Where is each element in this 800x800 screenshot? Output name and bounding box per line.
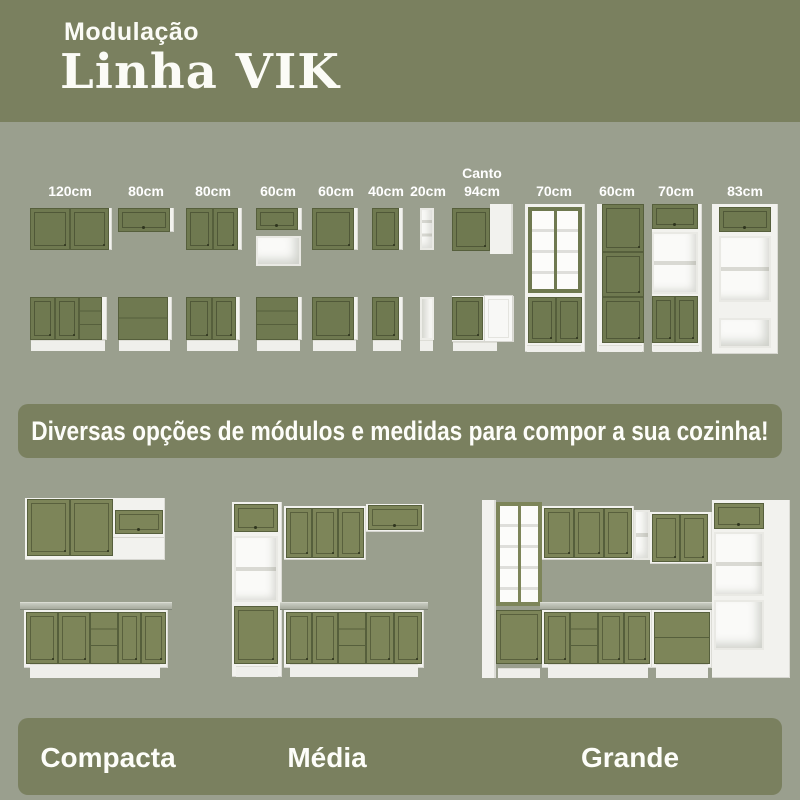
plinth — [290, 664, 418, 677]
countertop — [280, 602, 428, 610]
side-panel — [482, 500, 496, 678]
open-niche — [714, 600, 764, 650]
promo-banner: Diversas opções de módulos e medidas par… — [18, 404, 782, 458]
module-size-label: 70cm — [522, 158, 586, 200]
module-size-label: 60cm — [585, 158, 649, 200]
module-size-label: 83cm — [713, 158, 777, 200]
plinth — [420, 340, 433, 351]
cabinet-door — [312, 612, 338, 664]
cabinet-door — [234, 606, 278, 664]
cabinet-door — [55, 297, 79, 340]
drawer-stack — [118, 297, 168, 340]
plinth — [599, 345, 642, 352]
cabinet-carcass — [113, 534, 165, 538]
cabinet-door — [604, 508, 632, 558]
promo-banner-text: Diversas opções de módulos e medidas par… — [31, 416, 768, 447]
cabinet-door — [496, 610, 542, 664]
cabinet-door — [602, 252, 644, 297]
cabinet-door — [544, 612, 570, 664]
module-size-label: 70cm — [644, 158, 708, 200]
kitchen-label-grande: Grande — [581, 742, 679, 774]
open-niche — [420, 297, 434, 340]
plinth — [453, 342, 497, 351]
countertop — [652, 602, 712, 610]
drawer-stack — [90, 612, 118, 664]
module-size-label: 120cm — [38, 158, 102, 200]
flip-door — [234, 504, 278, 532]
flip-door — [714, 503, 764, 529]
flip-door — [368, 505, 422, 530]
cabinet-door — [27, 499, 70, 556]
open-shelves — [634, 510, 650, 560]
cabinet-door — [186, 208, 213, 250]
cabinet-door — [70, 208, 109, 250]
open-shelves — [652, 232, 698, 294]
cabinet-door — [213, 208, 238, 250]
cabinet-door — [602, 204, 644, 252]
cabinet-door — [366, 612, 394, 664]
page-title: Linha VIK — [60, 44, 340, 100]
cabinet-door — [338, 508, 364, 558]
kitchen-sizes-bar: Compacta Média Grande — [18, 718, 782, 795]
cabinet-door — [118, 612, 141, 664]
countertop — [540, 602, 652, 610]
cabinet-door — [624, 612, 650, 664]
cabinet-door — [312, 208, 354, 250]
plinth — [187, 340, 238, 351]
plinth — [119, 340, 170, 351]
cabinet-door — [544, 508, 574, 558]
cabinet-door — [452, 208, 490, 251]
page: Modulação Linha VIK 120cm80cm80cm60cm60c… — [0, 0, 800, 800]
cabinet-door — [574, 508, 604, 558]
drawer-stack — [570, 612, 598, 664]
cabinet-door — [312, 508, 338, 558]
plinth — [656, 664, 708, 678]
drawer-stack — [256, 297, 298, 340]
cabinet-door — [652, 296, 675, 343]
plinth — [498, 668, 540, 678]
cabinet-door — [394, 612, 422, 664]
cabinet-door — [312, 297, 354, 340]
plinth — [313, 340, 356, 351]
cabinet-door — [26, 612, 58, 664]
kitchen-label-compacta: Compacta — [40, 742, 175, 774]
white-door — [484, 295, 513, 342]
glass-cabinet — [496, 502, 542, 606]
plinth — [30, 664, 160, 678]
cabinet-door — [286, 508, 312, 558]
cabinet-door — [680, 514, 708, 562]
plinth — [257, 340, 300, 351]
cabinet-door — [30, 297, 55, 340]
cabinet-door — [452, 297, 483, 340]
plinth — [653, 345, 699, 352]
cabinet-door — [598, 612, 624, 664]
header-kicker: Modulação — [64, 18, 199, 47]
side-panel — [490, 204, 513, 254]
open-niche — [256, 236, 301, 266]
drawer-stack — [79, 297, 102, 340]
plinth — [236, 666, 278, 677]
module-size-label: 80cm — [181, 158, 245, 200]
flip-door — [719, 207, 771, 232]
cabinet-door — [186, 297, 212, 340]
cabinet-door — [30, 208, 70, 250]
flip-door — [652, 204, 698, 229]
cabinet-door — [58, 612, 90, 664]
cabinet-door — [602, 297, 644, 343]
plinth — [548, 664, 648, 678]
cabinet-door — [528, 297, 556, 343]
cabinet-door — [286, 612, 312, 664]
cabinet-door — [141, 612, 166, 664]
module-size-label: Canto 94cm — [450, 158, 514, 200]
cabinet-door — [70, 499, 113, 556]
open-shelves — [719, 236, 771, 302]
glass-cabinet — [528, 207, 582, 293]
cabinet-door — [372, 208, 399, 250]
open-shelves — [234, 536, 278, 602]
open-shelves — [420, 208, 434, 250]
kitchen-label-media: Média — [287, 742, 366, 774]
open-niche — [719, 318, 771, 348]
plinth — [373, 340, 401, 351]
drawer-stack — [654, 612, 710, 664]
flip-door — [256, 208, 298, 230]
cabinet-door — [372, 297, 399, 340]
module-size-label: 60cm — [246, 158, 310, 200]
header-band: Modulação Linha VIK — [0, 0, 800, 122]
countertop — [20, 602, 172, 610]
cabinet-door — [652, 514, 680, 562]
cabinet-door — [212, 297, 236, 340]
module-size-label: 80cm — [114, 158, 178, 200]
cabinet-door — [556, 297, 582, 343]
flip-door — [118, 208, 170, 232]
drawer-stack — [338, 612, 366, 664]
plinth — [527, 345, 581, 352]
cabinet-door — [675, 296, 698, 343]
flip-door — [115, 510, 163, 534]
open-shelves — [714, 532, 764, 596]
plinth — [31, 340, 105, 351]
